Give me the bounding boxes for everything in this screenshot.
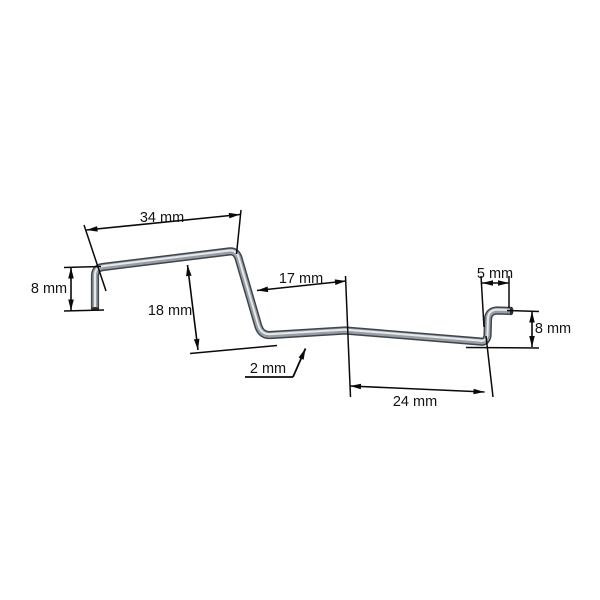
dimension-line xyxy=(350,386,485,392)
extension-line xyxy=(346,276,351,397)
dimension-label: 2 mm xyxy=(250,361,286,377)
dimension-label: 24 mm xyxy=(393,394,437,410)
dimension-middle-length: 17 mm xyxy=(257,271,346,291)
extension-line xyxy=(190,346,277,354)
dimension-label: 5 mm xyxy=(477,266,513,282)
wire-part xyxy=(91,250,514,341)
extension-line xyxy=(486,336,493,397)
extension-line xyxy=(64,310,104,311)
dimension-label: 8 mm xyxy=(31,281,67,297)
technical-drawing: 34 mm 8 mm 18 mm 17 mm xyxy=(0,0,600,600)
dimension-wire-diameter: 2 mm xyxy=(245,349,306,378)
dimension-label: 8 mm xyxy=(535,321,571,337)
wire-body-dark xyxy=(95,251,512,341)
dimension-label: 34 mm xyxy=(140,210,184,226)
extension-line xyxy=(237,210,242,254)
dimension-label: 18 mm xyxy=(148,303,192,319)
extension-line xyxy=(466,348,539,349)
dimension-label: 17 mm xyxy=(279,271,323,287)
extension-line xyxy=(507,311,539,312)
drawing-svg: 34 mm 8 mm 18 mm 17 mm xyxy=(0,0,600,600)
wire-body-mid xyxy=(95,251,512,341)
leader-line xyxy=(293,349,306,378)
dimension-right-top-length: 5 mm xyxy=(477,266,513,327)
extension-line xyxy=(64,267,101,268)
